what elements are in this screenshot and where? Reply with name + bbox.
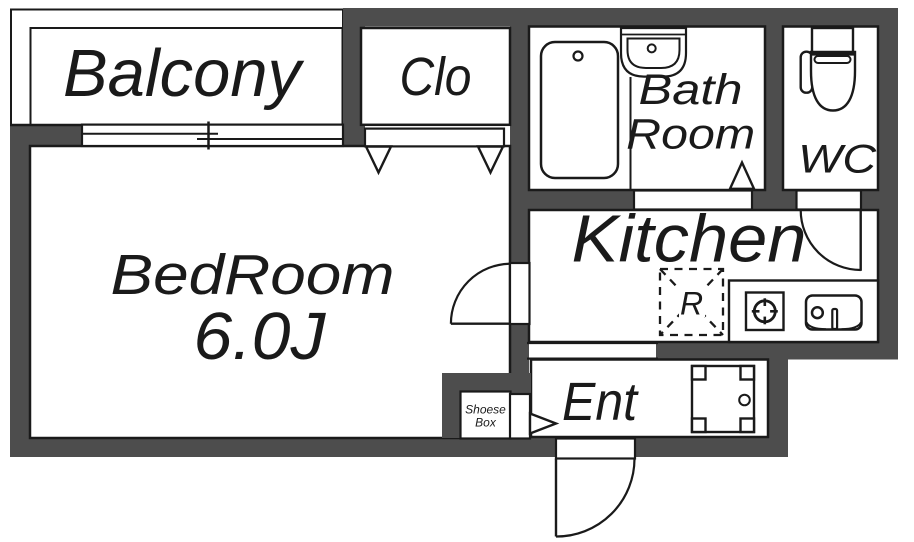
svg-text:Room: Room <box>626 110 755 158</box>
svg-text:Bath: Bath <box>639 66 743 114</box>
svg-text:Shoese: Shoese <box>465 403 506 417</box>
svg-text:Kitchen: Kitchen <box>572 202 807 277</box>
svg-text:WC: WC <box>798 138 877 182</box>
svg-text:R: R <box>680 286 703 322</box>
svg-text:Clo: Clo <box>400 47 472 107</box>
svg-text:6.0J: 6.0J <box>193 299 327 374</box>
svg-text:Ent: Ent <box>562 373 639 432</box>
svg-text:Balcony: Balcony <box>63 36 304 111</box>
svg-text:BedRoom: BedRoom <box>111 243 395 307</box>
svg-text:Box: Box <box>475 416 497 430</box>
